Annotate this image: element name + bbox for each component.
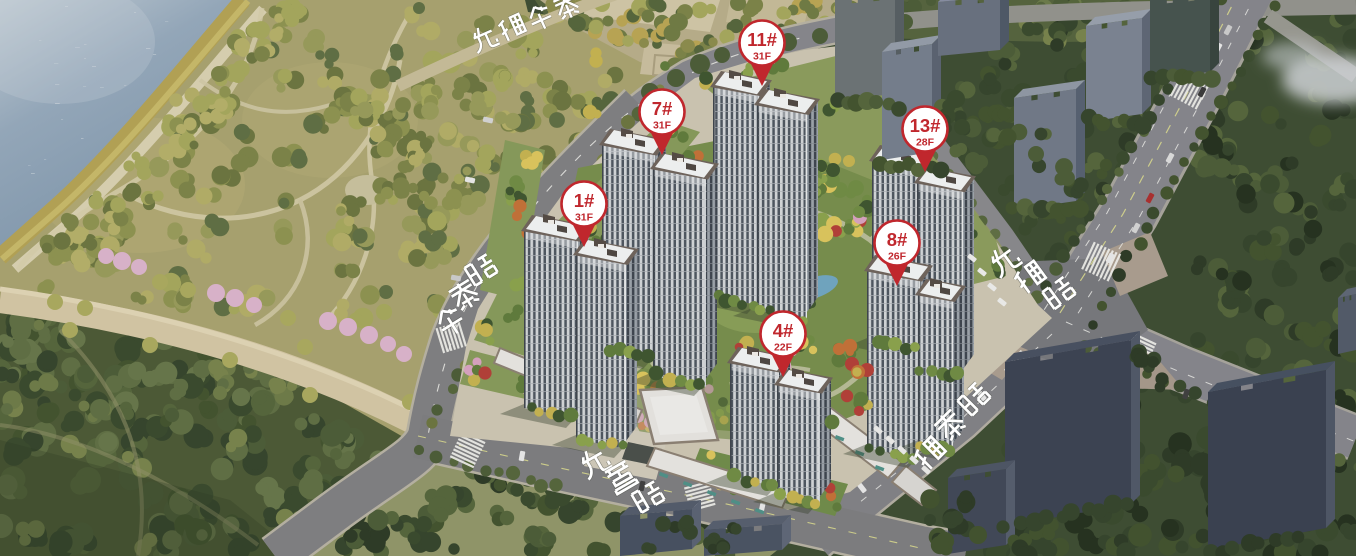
svg-text:7#: 7#	[652, 98, 673, 119]
svg-text:11#: 11#	[747, 29, 777, 50]
svg-text:28F: 28F	[916, 137, 935, 149]
svg-text:1#: 1#	[574, 190, 595, 211]
svg-text:31F: 31F	[653, 120, 672, 132]
svg-text:31F: 31F	[753, 51, 772, 63]
svg-text:8#: 8#	[887, 229, 908, 250]
svg-text:31F: 31F	[575, 212, 594, 224]
svg-text:13#: 13#	[910, 115, 941, 136]
svg-text:26F: 26F	[888, 251, 907, 263]
svg-text:22F: 22F	[774, 342, 793, 354]
svg-text:4#: 4#	[773, 320, 794, 341]
